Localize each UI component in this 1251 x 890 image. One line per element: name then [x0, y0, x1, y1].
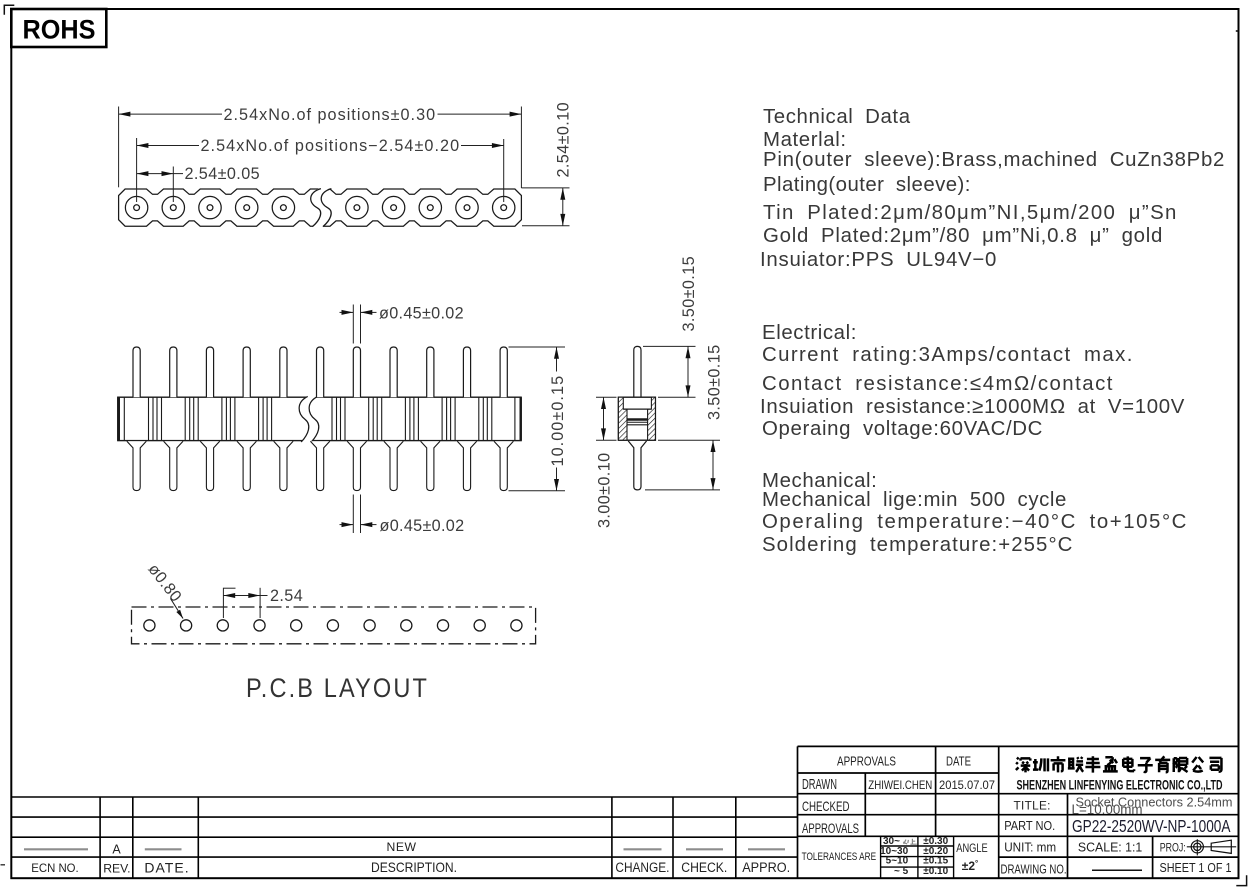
svg-text:3.00±0.10: 3.00±0.10: [596, 453, 614, 529]
svg-text:Current rating:3Amps/contact m: Current rating:3Amps/contact max.: [762, 344, 1133, 366]
svg-text:Materlal:: Materlal:: [763, 129, 847, 151]
svg-text:L=10.00mm: L=10.00mm: [1072, 802, 1143, 817]
svg-text:SCALE: 1:1: SCALE: 1:1: [1078, 840, 1142, 854]
svg-text:ø0.45±0.02: ø0.45±0.02: [379, 305, 464, 323]
svg-text:CHANGE.: CHANGE.: [615, 860, 669, 875]
svg-text:Insuiation resistance:≥1000MΩ: Insuiation resistance:≥1000MΩ at V=100V: [760, 396, 1185, 418]
svg-text:ROHS: ROHS: [23, 15, 96, 45]
svg-text:P.C.B LAYOUT: P.C.B LAYOUT: [246, 673, 429, 703]
svg-text:ECN NO.: ECN NO.: [31, 861, 78, 875]
svg-text:CHECK.: CHECK.: [681, 860, 727, 875]
svg-text:Technical Data: Technical Data: [763, 106, 911, 128]
svg-text:2.54: 2.54: [270, 587, 303, 605]
svg-text:SHEET 1 OF 1: SHEET 1 OF 1: [1160, 861, 1232, 875]
svg-text:Mechanical lige:min 500 cycle: Mechanical lige:min 500 cycle: [762, 489, 1067, 511]
svg-text:DRAWN: DRAWN: [802, 777, 837, 793]
svg-text:3.50±0.15: 3.50±0.15: [706, 345, 724, 421]
svg-text:3.50±0.15: 3.50±0.15: [680, 256, 698, 332]
svg-text:Operaling temperature:−40°C t: Operaling temperature:−40°C to+105°C: [762, 511, 1187, 533]
svg-text:CHECKED: CHECKED: [802, 798, 850, 814]
svg-text:Gold Plated:2μm”/80 μm”Ni,0.8: Gold Plated:2μm”/80 μm”Ni,0.8 μ” gold: [763, 225, 1163, 247]
svg-text:Insuiator:PPS UL94V−0: Insuiator:PPS UL94V−0: [760, 249, 997, 271]
svg-text:ø0.45±0.02: ø0.45±0.02: [380, 517, 465, 535]
svg-text:±0.15: ±0.15: [923, 856, 948, 867]
svg-text:2.54xNo.of positions±0.30: 2.54xNo.of positions±0.30: [224, 106, 436, 124]
svg-text:APPRO.: APPRO.: [742, 860, 790, 875]
svg-text:2.54±0.05: 2.54±0.05: [185, 165, 261, 183]
svg-text:DESCRIPTION.: DESCRIPTION.: [371, 859, 457, 875]
svg-text:TITLE:: TITLE:: [1014, 798, 1051, 812]
svg-text:2015.07.07: 2015.07.07: [939, 778, 995, 792]
svg-text:Plating(outer sleeve):: Plating(outer sleeve):: [763, 174, 971, 196]
svg-text:GP22-2520WV-NP-1000A: GP22-2520WV-NP-1000A: [1072, 816, 1231, 836]
svg-text:2.54xNo.of positions−2.54±0.2: 2.54xNo.of positions−2.54±0.20: [201, 137, 460, 155]
svg-text:DATE: DATE: [946, 754, 971, 769]
svg-text:UNIT: mm: UNIT: mm: [1004, 840, 1056, 854]
svg-text:PART NO.: PART NO.: [1004, 819, 1055, 833]
svg-text:DATE.: DATE.: [144, 859, 189, 875]
svg-text:DRAWING NO.: DRAWING NO.: [1001, 862, 1067, 876]
svg-text:APPROVALS: APPROVALS: [802, 821, 859, 836]
svg-text:PROJ:: PROJ:: [1160, 840, 1186, 854]
svg-text:ANGLE: ANGLE: [956, 841, 988, 855]
svg-text:TOLERANCES ARE: TOLERANCES ARE: [802, 851, 877, 863]
svg-text:NEW: NEW: [387, 840, 417, 854]
svg-text:Electrical:: Electrical:: [762, 322, 857, 344]
svg-text:Tin Plated:2μm/80μm”NI,5μm/200: Tin Plated:2μm/80μm”NI,5μm/200 μ”Sn: [763, 202, 1177, 224]
svg-text:ZHIWEI.CHEN: ZHIWEI.CHEN: [868, 778, 932, 792]
svg-text:SHENZHEN LINFENYING ELECTRONIC: SHENZHEN LINFENYING ELECTRONIC CO.,LTD: [1017, 777, 1223, 792]
svg-text:Contact resistance:≤4mΩ/contac: Contact resistance:≤4mΩ/contact: [762, 373, 1113, 395]
svg-text:Pin(outer sleeve):Brass,machin: Pin(outer sleeve):Brass,machined CuZn38P…: [763, 149, 1225, 171]
svg-text:2.54±0.10: 2.54±0.10: [555, 102, 573, 178]
svg-text:~ 5: ~ 5: [894, 866, 909, 877]
svg-text:5~10: 5~10: [886, 856, 909, 867]
svg-text:Operaing voltage:60VAC/DC: Operaing voltage:60VAC/DC: [762, 418, 1043, 440]
svg-text:REV.: REV.: [103, 862, 130, 876]
svg-text:A: A: [112, 843, 121, 857]
svg-text:10.00±0.15: 10.00±0.15: [549, 376, 567, 467]
svg-text:APPROVALS: APPROVALS: [837, 754, 896, 769]
svg-text:±0.10: ±0.10: [923, 866, 948, 877]
svg-text:Soldering temperature:+255°C: Soldering temperature:+255°C: [762, 534, 1073, 556]
